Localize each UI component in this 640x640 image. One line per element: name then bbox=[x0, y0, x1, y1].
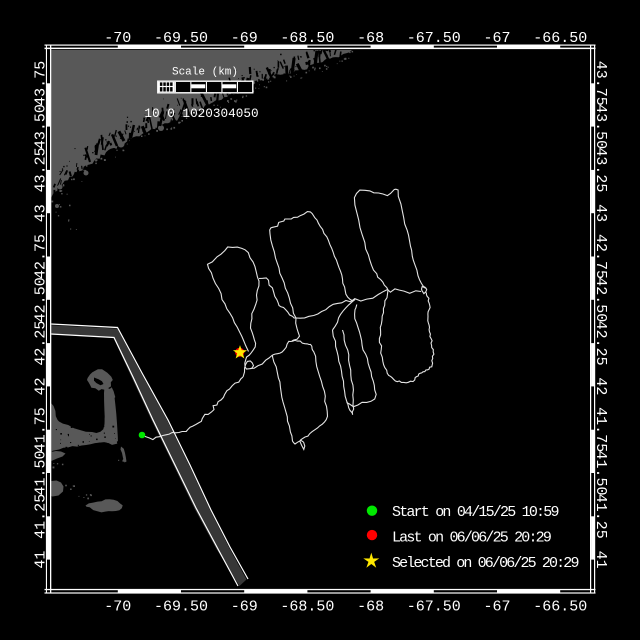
svg-text:41.75: 41.75 bbox=[592, 407, 609, 452]
svg-text:43: 43 bbox=[33, 204, 50, 222]
svg-text:-69: -69 bbox=[231, 599, 258, 616]
svg-text:41: 41 bbox=[33, 551, 50, 569]
svg-text:42.25: 42.25 bbox=[592, 321, 609, 366]
svg-text:-67.50: -67.50 bbox=[407, 30, 461, 47]
svg-text:42: 42 bbox=[33, 377, 50, 395]
svg-text:43.50: 43.50 bbox=[33, 104, 50, 149]
svg-text:-66.50: -66.50 bbox=[533, 30, 587, 47]
svg-text:-68: -68 bbox=[357, 599, 384, 616]
svg-text:42: 42 bbox=[592, 377, 609, 395]
svg-text:Scale (km): Scale (km) bbox=[172, 67, 238, 79]
svg-text:Selected on 06/06/25 20:29: Selected on 06/06/25 20:29 bbox=[392, 555, 578, 572]
svg-text:-70: -70 bbox=[104, 599, 131, 616]
svg-text:-70: -70 bbox=[104, 30, 131, 47]
svg-text:42.75: 42.75 bbox=[592, 234, 609, 279]
svg-text:41.25: 41.25 bbox=[33, 494, 50, 539]
svg-text:42.25: 42.25 bbox=[33, 321, 50, 366]
svg-text:-68.50: -68.50 bbox=[280, 30, 334, 47]
svg-text:42.75: 42.75 bbox=[33, 234, 50, 279]
svg-text:42.50: 42.50 bbox=[33, 277, 50, 322]
svg-text:-68.50: -68.50 bbox=[280, 599, 334, 616]
svg-text:-69.50: -69.50 bbox=[154, 599, 208, 616]
svg-text:41.25: 41.25 bbox=[592, 494, 609, 539]
svg-text:43.25: 43.25 bbox=[33, 147, 50, 192]
svg-text:43: 43 bbox=[592, 204, 609, 222]
svg-text:Last on 06/06/25 20:29: Last on 06/06/25 20:29 bbox=[392, 530, 551, 547]
svg-text:41.50: 41.50 bbox=[33, 450, 50, 495]
svg-text:43.25: 43.25 bbox=[592, 147, 609, 192]
svg-text:-69.50: -69.50 bbox=[154, 30, 208, 47]
svg-text:41.50: 41.50 bbox=[592, 450, 609, 495]
svg-text:42.50: 42.50 bbox=[592, 277, 609, 322]
svg-text:Start on 04/15/25 10:59: Start on 04/15/25 10:59 bbox=[392, 504, 558, 521]
svg-text:43.75: 43.75 bbox=[592, 61, 609, 106]
svg-text:43.50: 43.50 bbox=[592, 104, 609, 149]
svg-text:41: 41 bbox=[592, 551, 609, 569]
svg-text:-67: -67 bbox=[483, 30, 510, 47]
svg-text:-67.50: -67.50 bbox=[407, 599, 461, 616]
svg-text:41.75: 41.75 bbox=[33, 407, 50, 452]
svg-text:-67: -67 bbox=[483, 599, 510, 616]
svg-text:-68: -68 bbox=[357, 30, 384, 47]
svg-text:-69: -69 bbox=[231, 30, 258, 47]
svg-text:-66.50: -66.50 bbox=[533, 599, 587, 616]
svg-text:10 0 1020304050: 10 0 1020304050 bbox=[144, 106, 258, 121]
svg-text:43.75: 43.75 bbox=[33, 61, 50, 106]
